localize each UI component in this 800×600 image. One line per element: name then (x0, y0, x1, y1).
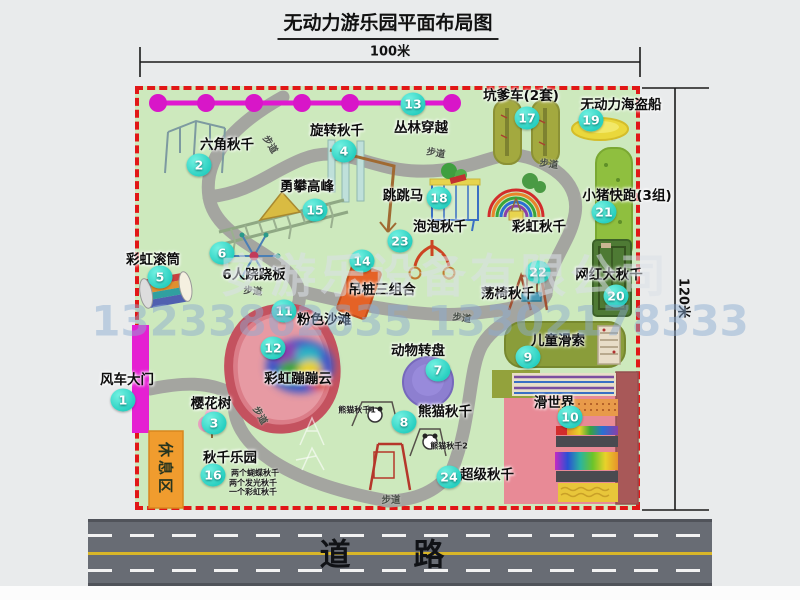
attraction-marker-5: 5 (148, 266, 173, 289)
attraction-marker-21: 21 (592, 201, 617, 224)
walkway-label-4: 步道 (243, 282, 263, 298)
attraction-marker-9: 9 (516, 346, 541, 369)
attraction-label-3: 樱花树 (191, 392, 232, 412)
walkway-label-3: 步道 (539, 155, 560, 172)
attraction-marker-23: 23 (388, 230, 413, 253)
attraction-marker-3: 3 (202, 412, 227, 435)
attraction-label-14: 吊桩三组合 (348, 278, 416, 298)
attraction-marker-10: 10 (558, 406, 583, 429)
walkway-label-5: 步道 (452, 309, 473, 326)
attraction-label-21: 小猪快跑(3组) (582, 184, 671, 204)
attraction-label-12: 彩虹蹦蹦云 (264, 367, 332, 387)
attraction-marker-7: 7 (426, 359, 451, 382)
attraction-marker-2: 2 (187, 154, 212, 177)
attraction-label-5: 彩虹滚筒 (126, 248, 180, 268)
attraction-label-24: 超级秋千 (460, 463, 514, 483)
attraction-label-9: 儿童滑索 (531, 329, 585, 349)
attraction-marker-11: 11 (272, 300, 297, 323)
note-label-1: 熊猫秋千1 (338, 405, 376, 416)
walkway-label-1: 步道 (260, 132, 282, 156)
dimension-right-label: 120米 (676, 278, 695, 318)
attraction-marker-16: 16 (201, 464, 226, 487)
attraction-label-6: 6人跷跷板 (222, 263, 285, 283)
walkway-label-2: 步道 (425, 143, 446, 160)
attraction-label-23: 泡泡秋千 (413, 215, 467, 235)
attraction-label-20: 网红大秋千 (575, 263, 643, 283)
walkway-label-6: 步道 (250, 403, 272, 426)
attraction-label-2: 六角秋千 (200, 133, 254, 153)
attraction-marker-22: 22 (526, 261, 551, 284)
attraction-label-17: 坑爹车(2套) (483, 84, 559, 104)
attraction-label-1: 风车大门 (100, 368, 154, 388)
attraction-marker-4: 4 (332, 140, 357, 163)
attraction-label-7: 动物转盘 (391, 339, 445, 359)
attraction-label-18: 跳跳马 (383, 184, 424, 204)
playground-layout-page: 无动力游乐园平面布局图 (0, 0, 800, 600)
dimension-top-label: 100米 (370, 41, 410, 60)
attraction-marker-19: 19 (579, 109, 604, 132)
attraction-marker-17: 17 (515, 107, 540, 130)
attraction-marker-24: 24 (437, 466, 462, 489)
attraction-marker-15: 15 (303, 199, 328, 222)
attraction-label-rainbow-swing: 彩虹秋千 (512, 215, 566, 235)
attraction-label-13: 丛林穿越 (394, 116, 448, 136)
attraction-label-4: 旋转秋千 (310, 119, 364, 139)
attraction-marker-18: 18 (427, 187, 452, 210)
walkway-label-7: 步道 (381, 492, 400, 506)
attraction-marker-13: 13 (401, 93, 426, 116)
note-label-2: 熊猫秋千2 (430, 441, 468, 452)
rest-area-label: 休息区 (156, 442, 177, 496)
attraction-marker-14: 14 (350, 250, 375, 273)
attraction-marker-1: 1 (111, 389, 136, 412)
attraction-marker-6: 6 (210, 242, 235, 265)
bottom-margin (0, 586, 800, 600)
attraction-label-22: 荡椅秋千 (481, 282, 535, 302)
road-label: 道 路 (320, 530, 471, 575)
attraction-label-11: 粉色沙滩 (297, 308, 351, 328)
attraction-marker-12: 12 (261, 337, 286, 360)
note-label-5: 一个彩虹秋千 (229, 487, 277, 498)
attraction-label-8: 熊猫秋千 (418, 400, 472, 420)
attraction-label-15: 勇攀高峰 (280, 175, 334, 195)
attraction-marker-8: 8 (392, 411, 417, 434)
attraction-marker-20: 20 (604, 285, 629, 308)
